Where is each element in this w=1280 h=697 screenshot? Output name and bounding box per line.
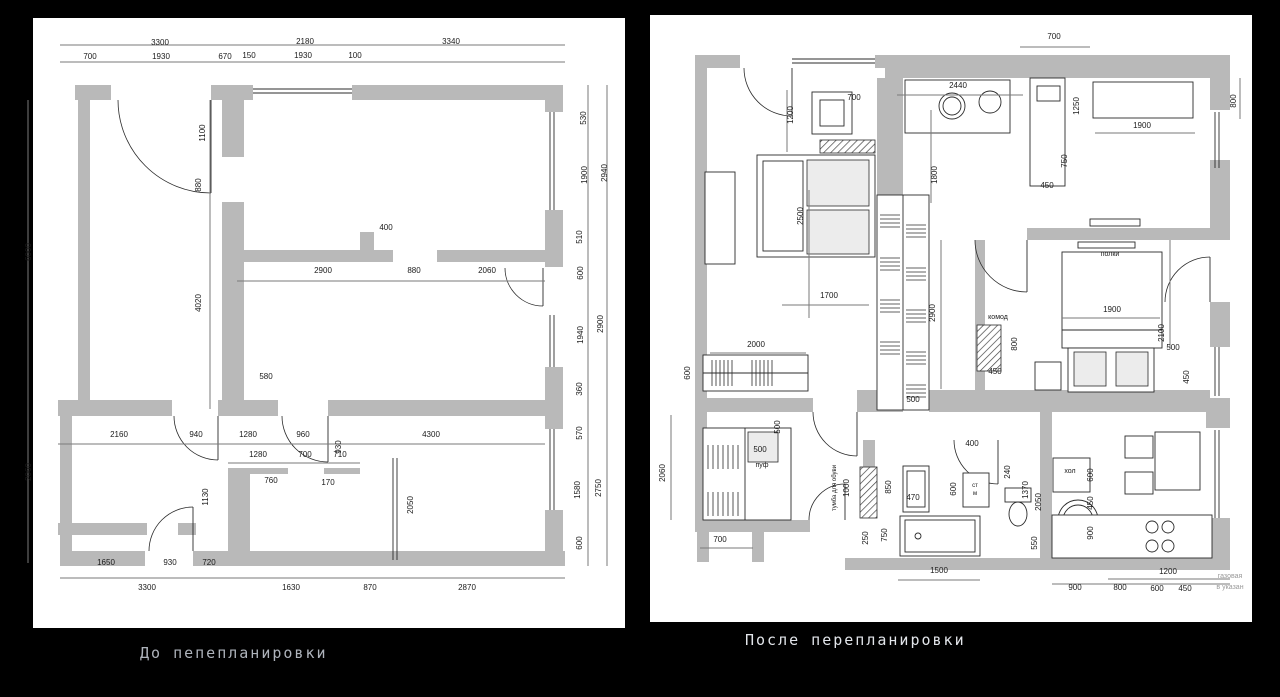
dimension-label: 870 — [363, 583, 377, 592]
wall-segment — [695, 55, 740, 68]
dimension-label: 1930 — [152, 52, 170, 61]
wall-segment — [357, 85, 545, 100]
dimension-label: 1900 — [580, 166, 589, 184]
dimension-label: 600 — [1086, 468, 1095, 482]
dimension-label: 450 — [1178, 584, 1192, 593]
wall-segment — [228, 474, 250, 566]
dimension-label: 2060 — [658, 464, 667, 482]
wall-segment — [245, 85, 253, 100]
wall-segment — [58, 523, 147, 535]
wall-segment — [545, 210, 563, 267]
dimension-label: 240 — [1003, 465, 1012, 479]
dimension-label: 1630 — [282, 583, 300, 592]
dimension-label: 1200 — [786, 106, 795, 124]
dimension-label: 710 — [333, 450, 347, 459]
dimension-label: 880 — [194, 178, 203, 192]
wall-segment — [211, 85, 245, 100]
dimension-label: в указан — [1216, 584, 1243, 591]
soft-furniture — [807, 210, 869, 254]
caption-before-replanning: До пепепланировки — [140, 644, 328, 662]
dimension-label: комод — [988, 314, 1008, 321]
wall-segment — [328, 400, 545, 416]
dimension-label: 2900 — [928, 304, 937, 322]
dimension-label: 450 — [1086, 496, 1095, 510]
dimension-label: 600 — [1150, 584, 1164, 593]
furniture-outline — [705, 172, 735, 264]
wall-segment — [1040, 412, 1052, 558]
wall-segment — [352, 85, 357, 100]
dimension-label: 2000 — [747, 340, 765, 349]
dimension-label: 1000 — [842, 479, 851, 497]
sheet-before — [33, 18, 625, 628]
furniture-outline — [1053, 458, 1090, 492]
dimension-label: тумба для обуви — [832, 465, 838, 511]
dimension-label: 1130 — [201, 488, 210, 506]
dimension-label: 450 — [1182, 370, 1191, 384]
dimension-label: 700 — [1047, 32, 1061, 41]
dimension-label: 940 — [189, 430, 203, 439]
hatched-element — [820, 140, 875, 153]
dimension-label: 500 — [753, 445, 767, 454]
wall-segment — [222, 202, 244, 415]
dimension-label: 3340 — [442, 37, 460, 46]
wall-segment — [545, 85, 563, 112]
furniture-outline — [763, 161, 803, 251]
wall-segment — [360, 232, 374, 250]
dimension-label: 510 — [575, 230, 584, 244]
wall-segment — [1027, 228, 1212, 240]
dimension-label: 2060 — [24, 463, 33, 481]
dimension-label: 1580 — [573, 481, 582, 499]
dimension-label: 450 — [988, 367, 1002, 376]
dimension-label: 960 — [296, 430, 310, 439]
furniture-outline — [1078, 242, 1135, 248]
dimension-label: 880 — [407, 266, 421, 275]
furniture-outline — [1062, 252, 1162, 348]
dimension-label: 2060 — [478, 266, 496, 275]
dimension-label: 100 — [348, 51, 362, 60]
dimension-label: 3300 — [138, 583, 156, 592]
wall-segment — [222, 100, 244, 157]
dimension-label: 360 — [575, 382, 584, 396]
soft-furniture — [1116, 352, 1148, 386]
dimension-label: 1250 — [1072, 97, 1081, 115]
dimension-label: 1900 — [1103, 305, 1121, 314]
dimension-label: 750 — [1060, 154, 1069, 168]
furniture-outline — [1125, 472, 1153, 494]
dimension-label: 2050 — [406, 496, 415, 514]
dimension-label: 800 — [1010, 337, 1019, 351]
dimension-label: 1280 — [239, 430, 257, 439]
wall-segment — [324, 468, 360, 474]
dimension-label: пуф — [756, 462, 769, 469]
dimension-label: 150 — [242, 51, 256, 60]
dimension-label: 1700 — [820, 291, 838, 300]
dimension-label: 600 — [576, 266, 585, 280]
dimension-label: 760 — [264, 476, 278, 485]
dimension-label: 700 — [847, 93, 861, 102]
dimension-label: 2900 — [314, 266, 332, 275]
wall-segment — [437, 250, 545, 262]
dimension-label: 600 — [683, 366, 692, 380]
dimension-label: м — [973, 491, 977, 497]
dimension-label: хол — [1064, 468, 1075, 475]
soft-furniture — [807, 160, 869, 206]
dimension-label: 550 — [1030, 536, 1039, 550]
dimension-label: 2180 — [296, 37, 314, 46]
dimension-label: 2870 — [458, 583, 476, 592]
wall-segment — [545, 367, 563, 400]
dimension-label: 500 — [1166, 343, 1180, 352]
dimension-label: 1930 — [294, 51, 312, 60]
dimension-label: 500 — [773, 420, 782, 434]
dimension-label: 1100 — [198, 124, 207, 142]
furniture-outline — [963, 473, 989, 507]
dimension-label: 4020 — [194, 294, 203, 312]
wall-segment — [228, 468, 288, 474]
dimension-label: 2050 — [1034, 493, 1043, 511]
dimension-label: 250 — [861, 531, 870, 545]
hatched-element — [860, 467, 877, 518]
furniture-outline — [905, 520, 975, 552]
dimension-label: 170 — [321, 478, 335, 487]
dimension-label: 3300 — [151, 38, 169, 47]
dimension-label: 800 — [1113, 583, 1127, 592]
dimension-label: 1900 — [1133, 121, 1151, 130]
wall-segment — [975, 390, 1210, 412]
wall-segment — [752, 532, 764, 562]
wall-segment — [697, 532, 709, 562]
wall-segment — [545, 400, 563, 429]
dimension-label: 2900 — [596, 315, 605, 333]
dimension-label: 470 — [906, 493, 920, 502]
dimension-label: 2100 — [1157, 324, 1166, 342]
furniture-outline — [1090, 219, 1140, 226]
dimension-label: 4300 — [422, 430, 440, 439]
furniture-outline — [1035, 362, 1061, 390]
wall-segment — [1210, 160, 1230, 240]
dimension-label: 720 — [202, 558, 216, 567]
dimension-label: 2500 — [796, 207, 805, 225]
wall-segment — [875, 55, 885, 68]
dimension-label: 2750 — [594, 479, 603, 497]
dimension-label: 1650 — [97, 558, 115, 567]
wall-segment — [78, 85, 90, 415]
furniture-outline — [1037, 86, 1060, 101]
furniture-outline — [820, 100, 844, 126]
wall-segment — [695, 520, 810, 532]
dimension-label: 700 — [298, 450, 312, 459]
dimension-label: ст — [972, 483, 978, 489]
dimension-label: 1500 — [930, 566, 948, 575]
floor-plan-drawing: 3300218033407001930670150193010053019002… — [0, 0, 1280, 697]
wall-segment — [885, 55, 1230, 78]
dimension-label: газовая — [1218, 573, 1243, 580]
dimension-label: 700 — [83, 52, 97, 61]
dimension-label: 400 — [379, 223, 393, 232]
floor-plan-comparison: 3300218033407001930670150193010053019002… — [0, 0, 1280, 697]
wall-segment — [58, 400, 172, 416]
wall-segment — [237, 250, 393, 262]
dimension-label: 1940 — [576, 326, 585, 344]
dimension-label: 530 — [579, 111, 588, 125]
dimension-label: 6000 — [24, 243, 33, 261]
wall-segment — [695, 398, 813, 412]
dimension-label: 800 — [1229, 94, 1238, 108]
dimension-label: 700 — [713, 535, 727, 544]
dimension-label: 1200 — [1159, 567, 1177, 576]
dimension-label: 1370 — [1021, 481, 1030, 499]
hatched-element — [977, 325, 1001, 371]
furniture-outline — [1155, 432, 1200, 490]
dimension-label: полки — [1101, 251, 1120, 258]
dimension-label: 930 — [163, 558, 177, 567]
wall-segment — [929, 390, 975, 412]
dimension-label: 570 — [575, 426, 584, 440]
dimension-label: 600 — [949, 482, 958, 496]
dimension-label: 400 — [965, 439, 979, 448]
dimension-label: 670 — [218, 52, 232, 61]
dimension-label: 750 — [880, 528, 889, 542]
wall-segment — [877, 78, 903, 195]
dimension-label: 2940 — [600, 164, 609, 182]
wall-segment — [863, 440, 875, 470]
caption-after-replanning: После перепланировки — [745, 631, 966, 649]
dimension-label: 600 — [575, 536, 584, 550]
dimension-label: 450 — [1040, 181, 1054, 190]
wall-segment — [230, 551, 565, 566]
dimension-label: 1800 — [930, 166, 939, 184]
soft-furniture — [1074, 352, 1106, 386]
dimension-label: 500 — [906, 395, 920, 404]
dimension-label: 580 — [259, 372, 273, 381]
dimension-label: 1280 — [249, 450, 267, 459]
dimension-label: 850 — [884, 480, 893, 494]
wall-segment — [60, 415, 72, 566]
dimension-label: 2440 — [949, 81, 967, 90]
dimension-label: 900 — [1086, 526, 1095, 540]
dimension-label: 2160 — [110, 430, 128, 439]
wall-segment — [1210, 302, 1230, 347]
dimension-label: 900 — [1068, 583, 1082, 592]
furniture-outline — [1052, 515, 1212, 558]
furniture-outline — [1093, 82, 1193, 118]
furniture-outline — [1125, 436, 1153, 458]
wall-segment — [1210, 55, 1230, 110]
